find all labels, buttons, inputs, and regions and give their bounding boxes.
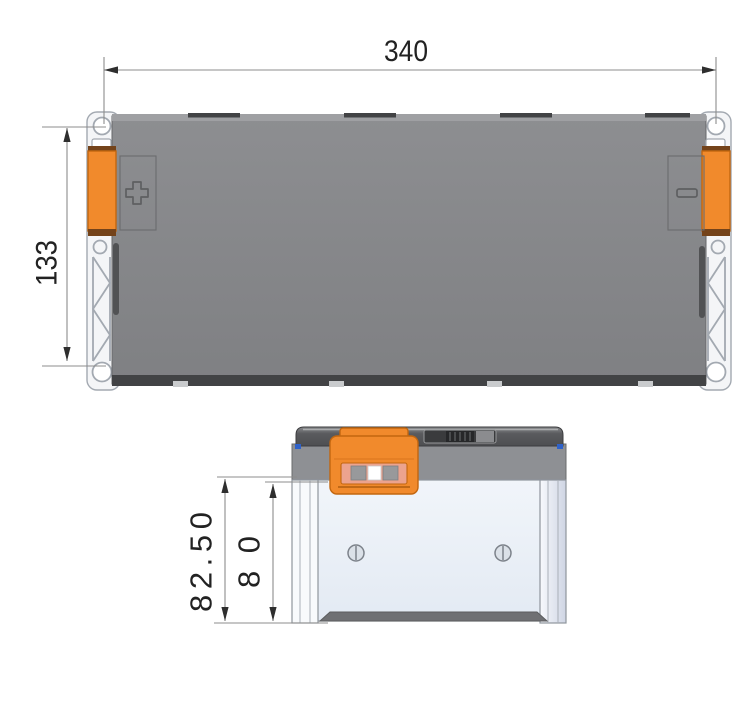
left-edge-shadow [113, 243, 119, 315]
dimension-width: 340 [104, 35, 716, 124]
arrow-top [63, 128, 70, 142]
arrow-bottom [269, 607, 276, 621]
right-edge-shadow [699, 246, 705, 318]
blue-mark-right [557, 444, 563, 449]
connector-contact [383, 466, 398, 480]
dash [500, 113, 552, 118]
arrow-bottom [221, 607, 228, 621]
technical-drawing-canvas: 340 133 [0, 0, 750, 709]
dimension-inner-height-label: 80 [232, 536, 267, 588]
cell-body [112, 113, 706, 387]
notch [638, 381, 653, 387]
left-rail-face [292, 480, 318, 623]
dimension-width-label: 340 [384, 35, 428, 68]
terminal-block-positive [88, 151, 116, 231]
terminal-clamp [330, 428, 418, 494]
side-cell [292, 427, 566, 623]
terminal-crimp-bottom [702, 229, 730, 236]
battery-dimension-drawing: 340 133 [0, 0, 750, 709]
arrow-top [269, 484, 276, 498]
arrow-bottom [63, 347, 70, 361]
arrow-right [702, 66, 716, 73]
connector-center [368, 466, 381, 480]
bottom-edge-strip [112, 375, 706, 386]
dash [645, 113, 690, 118]
dash [188, 113, 240, 118]
bottom-groove [320, 612, 547, 621]
notch [173, 381, 188, 387]
mounting-hole-top-left [94, 118, 111, 135]
right-rail-face [540, 480, 566, 623]
mounting-hole-bottom-right [707, 363, 726, 382]
mounting-hole-bottom-left [93, 363, 112, 382]
dimension-overall-height-label: 82.50 [184, 512, 219, 612]
dash [344, 113, 396, 118]
terminal-block-negative [702, 151, 730, 231]
vent-slot [424, 430, 496, 443]
vent-slot-cover [476, 431, 494, 442]
left-rail [292, 480, 318, 623]
arrow-left [104, 66, 118, 73]
dimension-height-label: 133 [31, 240, 64, 286]
terminal-crimp-bottom [88, 229, 116, 236]
notch [487, 381, 502, 387]
front-view: 340 133 [31, 35, 732, 390]
side-view: 82.50 80 [184, 427, 567, 623]
connector-contact [351, 466, 366, 480]
right-rail [540, 480, 566, 623]
blue-mark-left [295, 444, 301, 449]
cell-body-face [112, 116, 706, 384]
notch [329, 381, 344, 387]
arrow-top [221, 479, 228, 493]
